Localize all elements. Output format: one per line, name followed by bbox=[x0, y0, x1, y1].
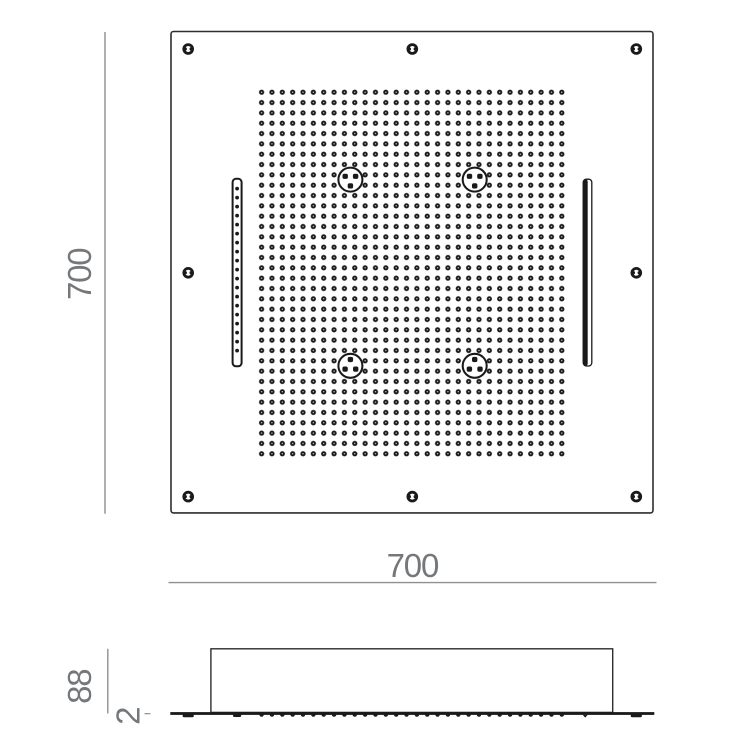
svg-text:2: 2 bbox=[110, 708, 147, 725]
svg-text:700: 700 bbox=[61, 248, 98, 300]
svg-text:88: 88 bbox=[61, 670, 98, 704]
svg-text:700: 700 bbox=[387, 547, 439, 584]
